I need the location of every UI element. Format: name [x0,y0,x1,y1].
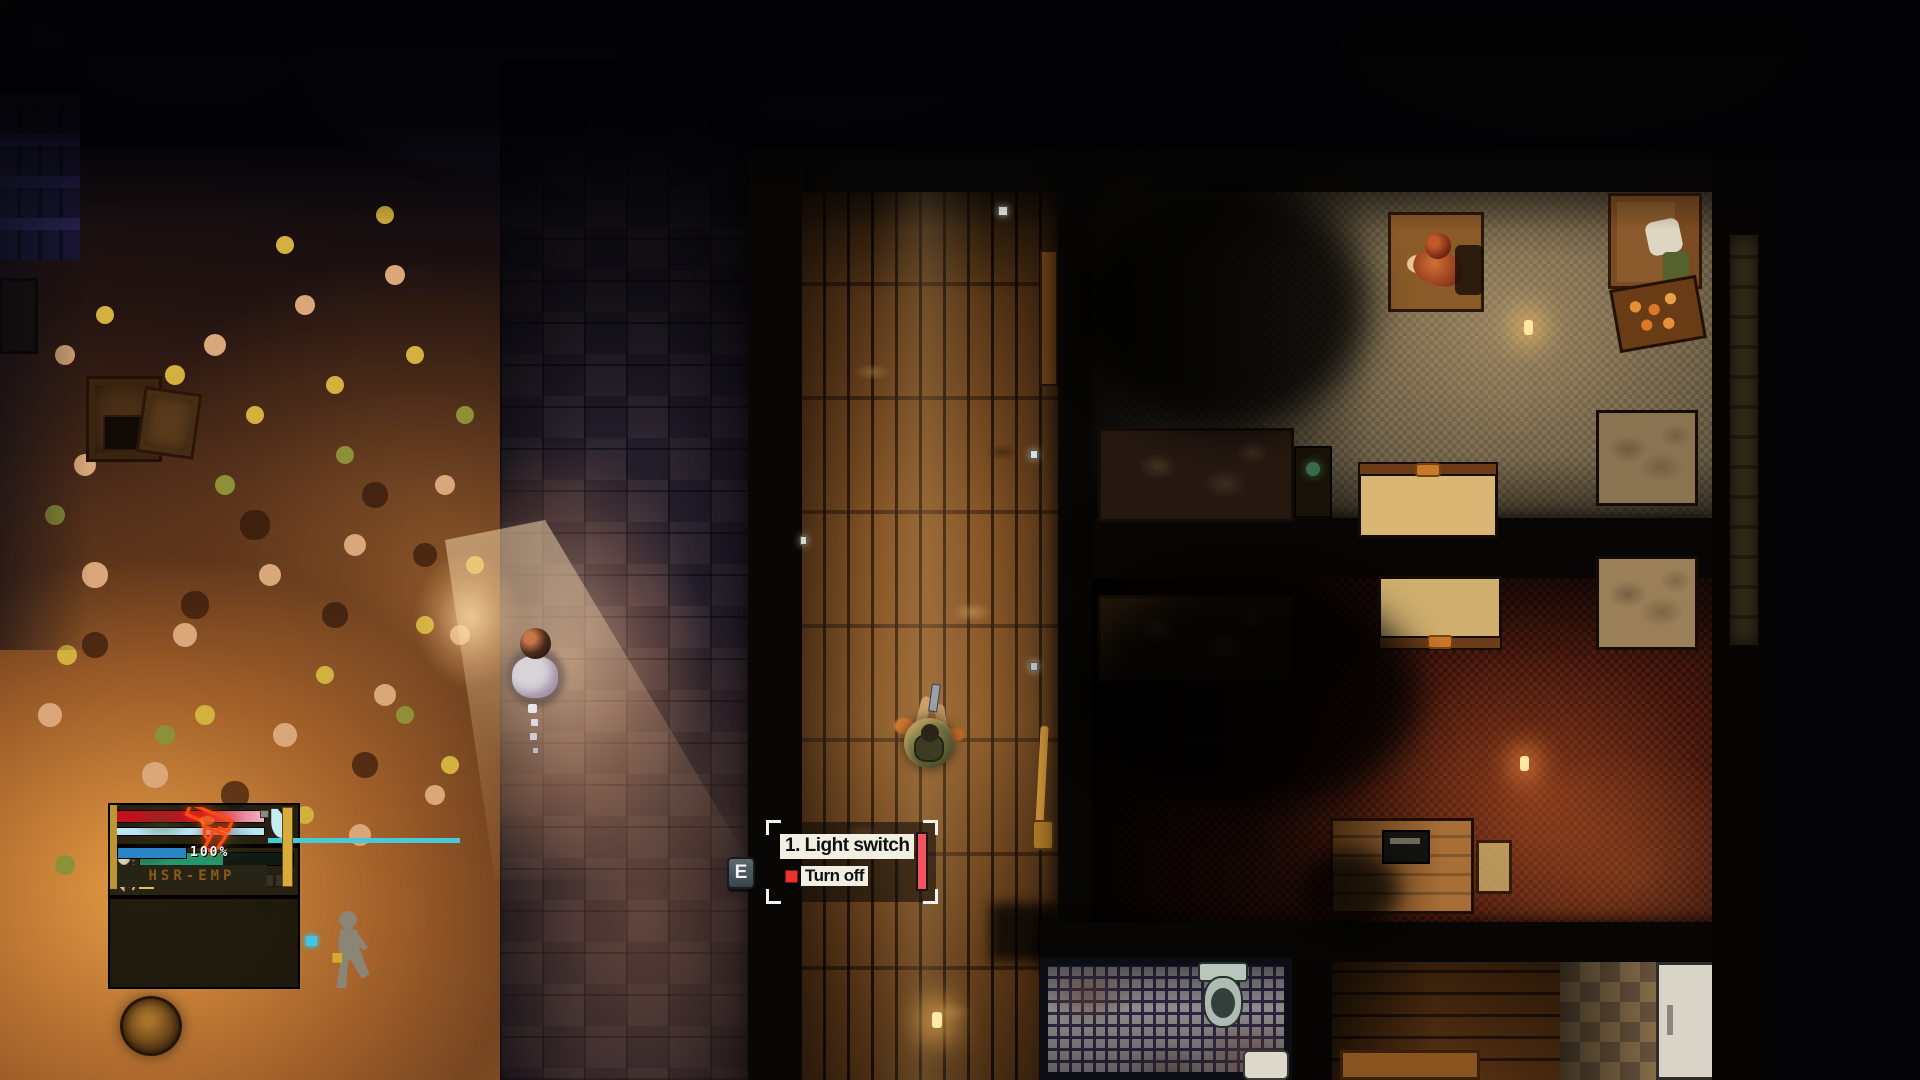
key-e-badge[interactable]: E [727,857,755,889]
kitchen-checker-floor [1560,962,1656,1080]
wall-sconce[interactable] [1030,662,1038,671]
blanket-bow [1427,635,1453,649]
typewriter [1382,830,1430,864]
weapon-panel-gold-strip [110,805,117,889]
interaction-tooltip: 1. Light switch Turn off [768,822,936,902]
toilet-seat [1211,988,1235,1018]
candle [1520,756,1529,771]
tooltip-corner-bracket [923,889,938,904]
bed-lit [1358,462,1498,538]
npc-scarf [528,704,537,713]
tooltip-corner-bracket [766,889,781,904]
typewriter-keys [1390,838,1420,844]
bed-dim [1596,410,1698,506]
hallway-candle-glow [932,1012,942,1028]
room-shadow [1560,962,1656,1080]
wall-sconce[interactable] [1030,450,1038,459]
player-hud: 100% HSR-EMP [108,803,300,989]
action-label[interactable]: Turn off [801,866,868,886]
oranges [1617,283,1699,345]
blanket-blotches [1599,413,1695,503]
npc-on-path [502,612,572,752]
ammo-percent-label: 100% [190,845,248,861]
nightstand [1294,446,1332,518]
npc-head [520,628,551,659]
interaction-action-row[interactable]: Turn off [785,866,868,886]
wooden-crate [136,386,203,459]
building-west-wall [748,148,804,1080]
darkness-overlay [0,0,420,360]
bed-dark [1098,428,1294,522]
fridge-handle [1667,1005,1673,1035]
tooltip-corner-bracket [766,820,781,835]
armor-bar-fill [268,838,460,843]
weapon-gold-bar [282,807,293,887]
blanket-blotches [1599,559,1695,647]
blanket-blotches [1101,431,1291,519]
broom-head [1032,820,1054,850]
shadow-blob [1300,850,1400,930]
chair-shadow [1455,245,1483,295]
refrigerator[interactable] [1656,962,1718,1080]
radio-glow [1306,462,1320,476]
interior-door[interactable] [1040,250,1058,386]
ammo-bar-track [117,847,187,859]
interior-wall [1292,958,1332,1080]
light-switch[interactable] [800,536,807,545]
room-corner-shadow [1080,580,1420,810]
stance-indicator-dots [306,936,317,1006]
toilet[interactable] [1198,962,1248,1036]
bed-dim [1596,556,1698,650]
game-viewport: E 1. Light switch Turn off [0,0,1920,1080]
manhole-cover [120,996,182,1056]
stance-walking-icon [320,910,376,992]
interaction-progress-bar [916,832,928,891]
weapon-panel [108,897,300,989]
chair [1476,840,1512,894]
table [1340,1050,1480,1080]
far-right-room-sliver [1730,235,1758,645]
candle [1524,320,1533,335]
npc-shirt [512,656,558,698]
player-head [921,724,939,742]
ammo-bar-fill [118,848,186,858]
npc-seated-head [1425,233,1451,259]
blanket-bow [1415,463,1441,477]
weapon-name-label: HSR-EMP [117,865,267,887]
action-bullet-icon [785,870,798,883]
stance-dot [306,936,317,946]
interaction-title: 1. Light switch [780,834,914,859]
player-character [878,688,970,800]
sink [1243,1050,1289,1080]
